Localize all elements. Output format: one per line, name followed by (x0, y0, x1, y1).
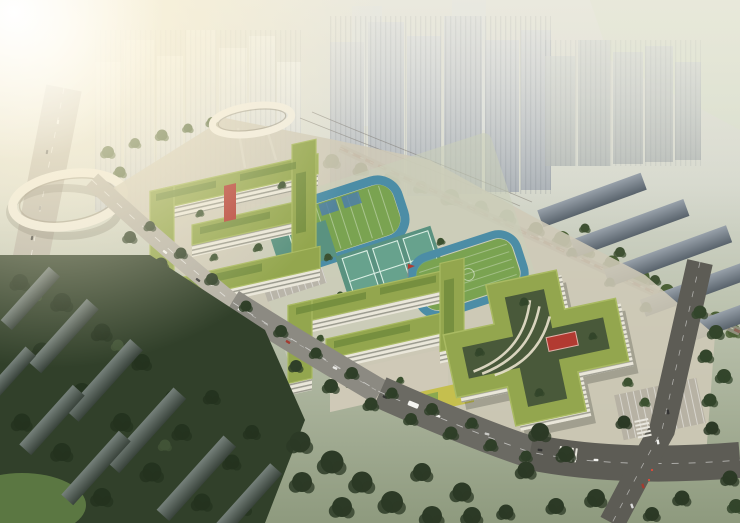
sun-glare-core (0, 0, 420, 340)
aerial-rendering (0, 0, 740, 523)
